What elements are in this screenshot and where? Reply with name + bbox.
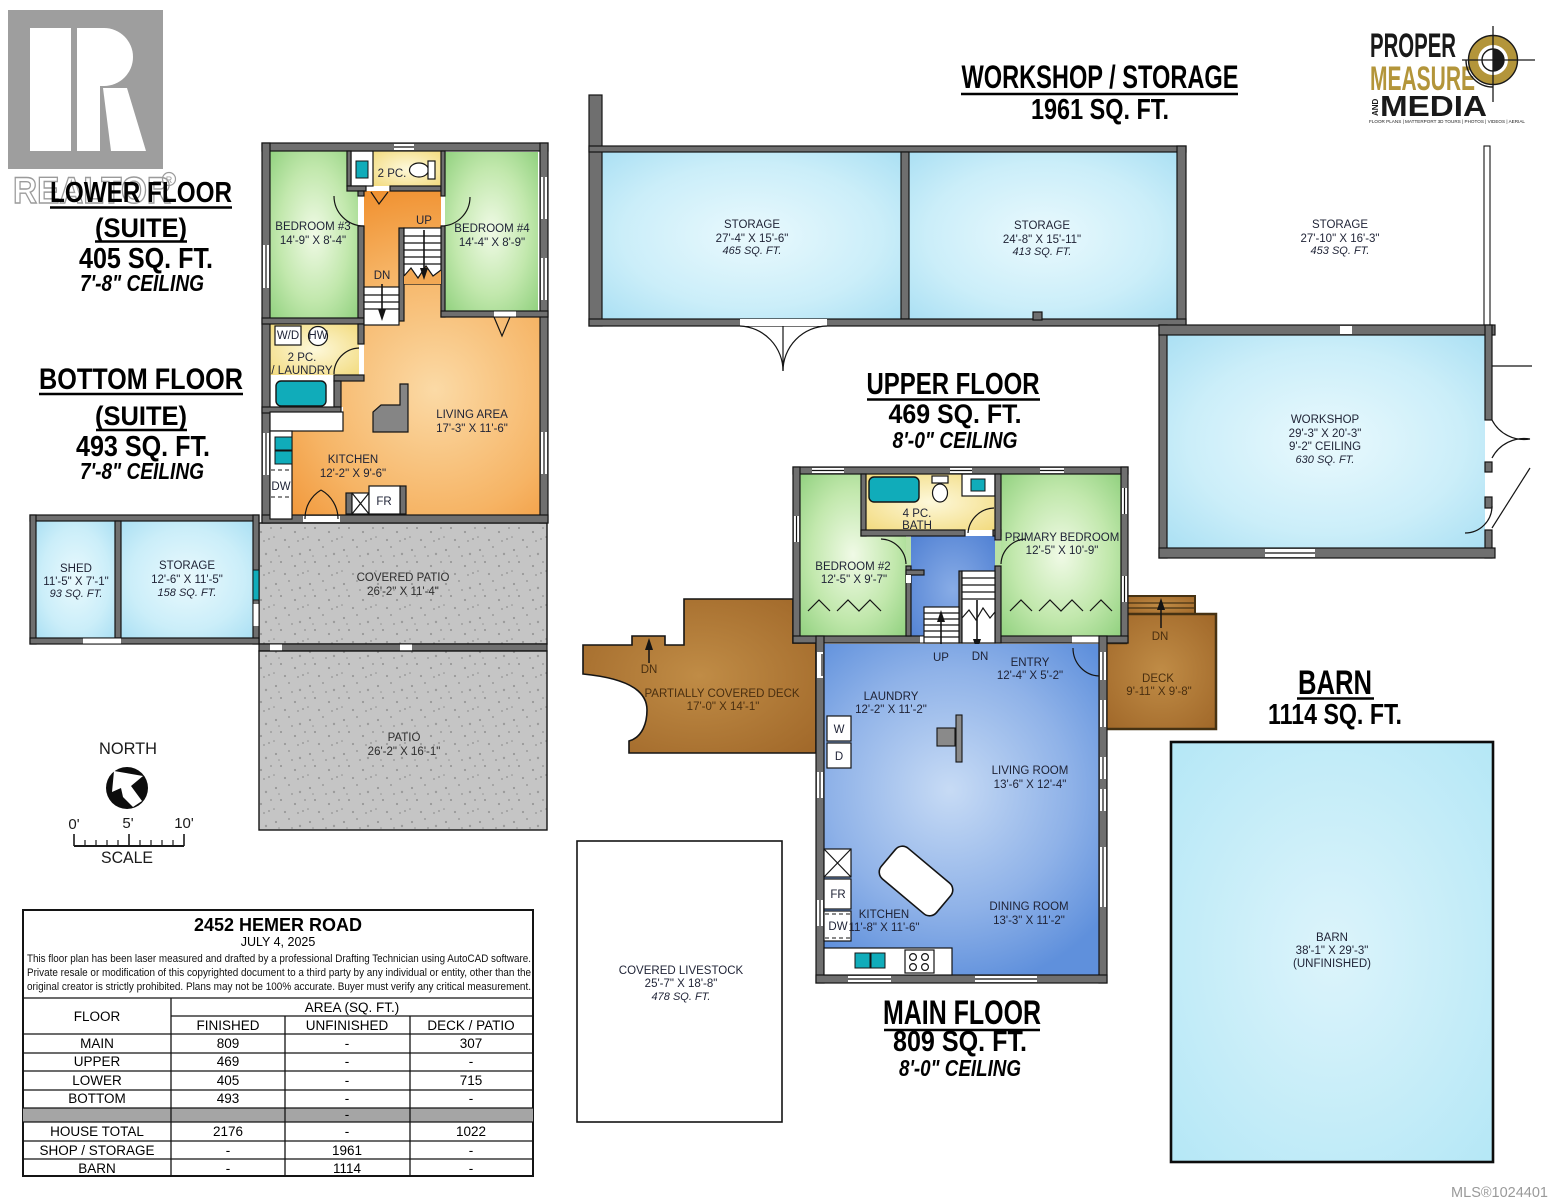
svg-text:12'-2" X 11'-2": 12'-2" X 11'-2" [855, 704, 927, 716]
svg-text:469: 469 [217, 1054, 240, 1069]
svg-text:13'-6" X 12'-4": 13'-6" X 12'-4" [994, 779, 1067, 791]
svg-text:29'-3" X 20'-3": 29'-3" X 20'-3" [1289, 428, 1362, 440]
svg-text:AND: AND [1371, 98, 1380, 116]
svg-text:9'-11" X 9'-8": 9'-11" X 9'-8" [1126, 686, 1191, 698]
svg-text:-: - [345, 1091, 350, 1106]
svg-text:LOWER: LOWER [72, 1073, 122, 1088]
svg-text:BATH: BATH [902, 520, 932, 532]
svg-text:25'-7" X 18'-8": 25'-7" X 18'-8" [645, 978, 718, 990]
svg-text:LAUNDRY: LAUNDRY [864, 691, 919, 703]
svg-text:/ LAUNDRY: / LAUNDRY [271, 365, 332, 377]
svg-text:SCALE: SCALE [101, 848, 153, 867]
svg-text:LOWER FLOOR: LOWER FLOOR [50, 177, 232, 209]
svg-text:BARN: BARN [1298, 664, 1372, 702]
svg-text:-: - [345, 1073, 350, 1088]
svg-text:AREA (SQ. FT.): AREA (SQ. FT.) [305, 1000, 400, 1015]
svg-text:453 SQ. FT.: 453 SQ. FT. [1311, 245, 1370, 257]
svg-text:BEDROOM #3: BEDROOM #3 [275, 221, 350, 233]
svg-text:26'-2" X 11'-4": 26'-2" X 11'-4" [367, 586, 439, 598]
svg-text:27'-10" X 16'-3": 27'-10" X 16'-3" [1300, 233, 1379, 245]
svg-text:809 SQ. FT.: 809 SQ. FT. [893, 1026, 1027, 1058]
svg-text:BARN: BARN [78, 1161, 116, 1176]
svg-text:38'-1" X 29'-3": 38'-1" X 29'-3" [1296, 945, 1369, 957]
svg-text:158 SQ. FT.: 158 SQ. FT. [158, 587, 217, 599]
svg-text:5': 5' [122, 815, 133, 832]
svg-text:809: 809 [217, 1036, 240, 1051]
svg-text:STORAGE: STORAGE [1014, 220, 1070, 232]
svg-text:(SUITE): (SUITE) [95, 213, 187, 243]
svg-text:26'-2" X 16'-1": 26'-2" X 16'-1" [368, 746, 441, 758]
svg-text:-: - [226, 1161, 231, 1176]
svg-text:7'-8" CEILING: 7'-8" CEILING [80, 270, 204, 296]
svg-text:17'-3" X 11'-6": 17'-3" X 11'-6" [436, 423, 508, 435]
svg-text:(SUITE): (SUITE) [95, 401, 187, 431]
svg-text:465 SQ. FT.: 465 SQ. FT. [723, 245, 782, 257]
svg-text:12'-5" X 9'-7": 12'-5" X 9'-7" [821, 574, 887, 586]
svg-text:W/D: W/D [277, 330, 299, 342]
svg-text:KITCHEN: KITCHEN [328, 454, 378, 466]
svg-text:12'-4" X 5'-2": 12'-4" X 5'-2" [997, 670, 1063, 682]
svg-text:MAIN: MAIN [80, 1036, 114, 1051]
svg-text:UP: UP [416, 215, 432, 227]
svg-text:DECK: DECK [1142, 673, 1174, 685]
svg-text:307: 307 [460, 1036, 483, 1051]
svg-text:FLOOR: FLOOR [74, 1009, 121, 1024]
svg-text:2 PC.: 2 PC. [378, 168, 407, 180]
svg-text:13'-3" X 11'-2": 13'-3" X 11'-2" [993, 915, 1065, 927]
svg-text:UPPER FLOOR: UPPER FLOOR [867, 366, 1040, 401]
svg-text:STORAGE: STORAGE [159, 560, 215, 572]
svg-text:8'-0" CEILING: 8'-0" CEILING [893, 427, 1018, 453]
svg-text:-: - [469, 1054, 474, 1069]
svg-text:KITCHEN: KITCHEN [859, 909, 909, 921]
svg-text:DN: DN [374, 270, 391, 282]
svg-text:HOUSE TOTAL: HOUSE TOTAL [50, 1124, 144, 1139]
svg-text:11'-8" X 11'-6": 11'-8" X 11'-6" [849, 922, 920, 934]
svg-text:BEDROOM #4: BEDROOM #4 [454, 223, 530, 235]
svg-text:UPPER: UPPER [74, 1054, 121, 1069]
svg-text:12'-5" X 10'-9": 12'-5" X 10'-9" [1026, 545, 1099, 557]
svg-text:12'-6" X 11'-5": 12'-6" X 11'-5" [151, 574, 223, 586]
svg-text:-: - [226, 1143, 231, 1158]
svg-text:COVERED LIVESTOCK: COVERED LIVESTOCK [619, 965, 744, 977]
svg-text:24'-8" X 15'-11": 24'-8" X 15'-11" [1003, 234, 1081, 246]
svg-text:11'-5" X 7'-1": 11'-5" X 7'-1" [43, 576, 108, 588]
svg-text:-: - [469, 1143, 474, 1158]
svg-text:DECK / PATIO: DECK / PATIO [427, 1018, 514, 1033]
svg-text:-: - [469, 1091, 474, 1106]
svg-text:UNFINISHED: UNFINISHED [306, 1018, 389, 1033]
svg-text:STORAGE: STORAGE [724, 219, 780, 231]
svg-text:9'-2" CEILING: 9'-2" CEILING [1289, 441, 1361, 453]
svg-text:DN: DN [972, 651, 989, 663]
svg-text:JULY 4, 2025: JULY 4, 2025 [241, 935, 316, 949]
svg-text:BOTTOM FLOOR: BOTTOM FLOOR [39, 363, 243, 396]
svg-text:1961 SQ. FT.: 1961 SQ. FT. [1031, 94, 1169, 126]
svg-text:LIVING AREA: LIVING AREA [436, 409, 508, 421]
svg-text:10': 10' [174, 815, 194, 832]
svg-text:FR: FR [376, 496, 391, 508]
svg-text:NORTH: NORTH [99, 739, 157, 758]
svg-text:27'-4" X 15'-6": 27'-4" X 15'-6" [716, 233, 789, 245]
svg-text:12'-2" X 9'-6": 12'-2" X 9'-6" [320, 468, 386, 480]
svg-text:MLS®1024401: MLS®1024401 [1451, 1185, 1548, 1200]
svg-text:DW: DW [271, 481, 290, 493]
svg-text:-: - [345, 1107, 350, 1122]
svg-text:WORKSHOP / STORAGE: WORKSHOP / STORAGE [962, 59, 1239, 95]
svg-text:FINISHED: FINISHED [196, 1018, 259, 1033]
svg-text:(UNFINISHED): (UNFINISHED) [1293, 958, 1371, 970]
svg-text:FLOOR PLANS | MATTERPORT 3D TO: FLOOR PLANS | MATTERPORT 3D TOURS | PHOT… [1369, 119, 1525, 124]
svg-text:DN: DN [1152, 631, 1169, 643]
svg-text:1022: 1022 [456, 1124, 486, 1139]
svg-text:493: 493 [217, 1091, 240, 1106]
svg-text:STORAGE: STORAGE [1312, 219, 1368, 231]
svg-text:ENTRY: ENTRY [1011, 657, 1050, 669]
svg-text:D: D [835, 751, 843, 763]
svg-text:DW: DW [828, 921, 847, 933]
svg-text:0': 0' [68, 816, 79, 833]
svg-text:8'-0" CEILING: 8'-0" CEILING [899, 1055, 1021, 1081]
svg-text:UP: UP [933, 652, 949, 664]
svg-text:-: - [345, 1054, 350, 1069]
svg-text:BEDROOM #2: BEDROOM #2 [815, 561, 890, 573]
svg-text:-: - [345, 1124, 350, 1139]
svg-text:4 PC.: 4 PC. [903, 508, 932, 520]
svg-text:COVERED PATIO: COVERED PATIO [357, 572, 450, 584]
svg-text:17'-0" X 14'-1": 17'-0" X 14'-1" [687, 701, 760, 713]
svg-text:2176: 2176 [213, 1124, 243, 1139]
svg-text:630 SQ. FT.: 630 SQ. FT. [1296, 454, 1355, 466]
svg-text:7'-8" CEILING: 7'-8" CEILING [80, 458, 204, 484]
svg-text:1114: 1114 [333, 1161, 362, 1176]
svg-text:PARTIALLY COVERED DECK: PARTIALLY COVERED DECK [644, 688, 799, 700]
svg-text:WORKSHOP: WORKSHOP [1291, 414, 1360, 426]
svg-text:BARN: BARN [1316, 932, 1348, 944]
svg-text:2452 HEMER ROAD: 2452 HEMER ROAD [194, 915, 362, 935]
svg-text:14'-4" X 8'-9": 14'-4" X 8'-9" [459, 237, 525, 249]
svg-text:14'-9" X 8'-4": 14'-9" X 8'-4" [280, 235, 346, 247]
svg-text:DN: DN [641, 664, 658, 676]
svg-text:LIVING ROOM: LIVING ROOM [992, 765, 1069, 777]
svg-text:2 PC.: 2 PC. [288, 352, 317, 364]
svg-text:SHED: SHED [60, 563, 92, 575]
svg-text:W: W [834, 724, 845, 736]
svg-text:PATIO: PATIO [388, 732, 421, 744]
svg-text:Private resale or modification: Private resale or modification of this c… [27, 967, 531, 979]
svg-text:FR: FR [830, 889, 845, 901]
svg-text:-: - [345, 1036, 350, 1051]
svg-text:HW: HW [308, 330, 327, 342]
svg-text:PRIMARY BEDROOM: PRIMARY BEDROOM [1005, 532, 1120, 544]
svg-text:-: - [469, 1161, 474, 1176]
svg-text:DINING ROOM: DINING ROOM [989, 901, 1068, 913]
svg-text:original creator is strictly p: original creator is strictly prohibited.… [27, 981, 531, 993]
svg-text:715: 715 [460, 1073, 483, 1088]
svg-text:SHOP / STORAGE: SHOP / STORAGE [39, 1143, 154, 1158]
svg-text:BOTTOM: BOTTOM [68, 1091, 126, 1106]
svg-text:469 SQ. FT.: 469 SQ. FT. [889, 399, 1022, 429]
svg-text:405: 405 [217, 1073, 240, 1088]
svg-text:93 SQ. FT.: 93 SQ. FT. [50, 588, 103, 600]
svg-text:1961: 1961 [332, 1143, 362, 1158]
svg-text:478 SQ. FT.: 478 SQ. FT. [652, 991, 711, 1003]
svg-text:This floor plan has been laser: This floor plan has been laser measured … [27, 953, 531, 965]
svg-text:1114 SQ. FT.: 1114 SQ. FT. [1268, 699, 1402, 731]
svg-text:413 SQ. FT.: 413 SQ. FT. [1013, 246, 1072, 258]
